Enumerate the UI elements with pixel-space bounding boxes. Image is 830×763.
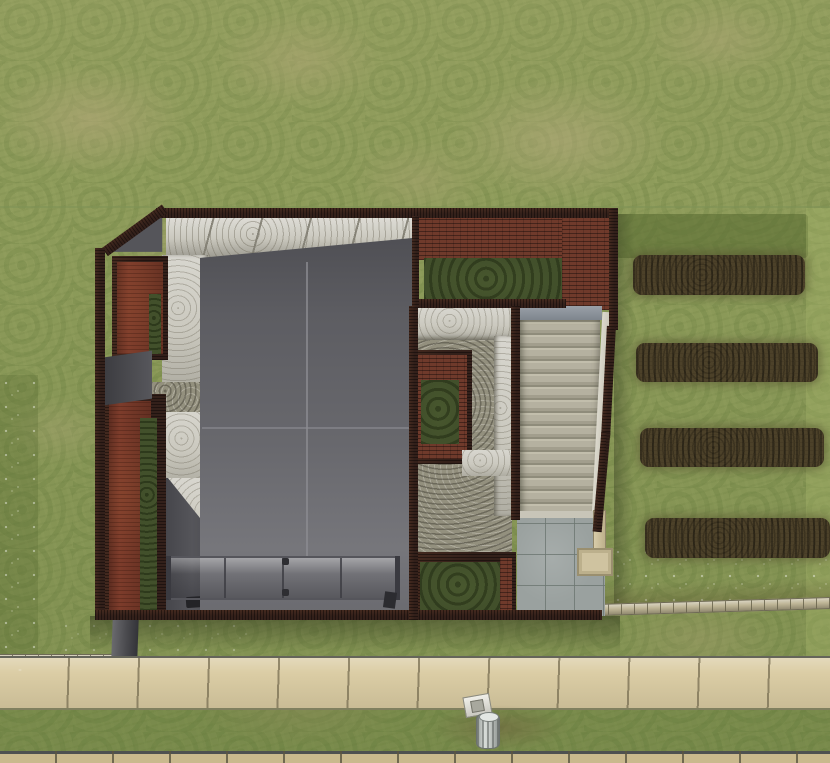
planter-bed[interactable] [421,380,459,444]
lower-courtyard-lawn[interactable] [420,562,504,612]
upper-hedge [149,294,161,354]
garden-plot-1[interactable] [633,255,805,295]
stair-landing [520,306,602,320]
wall-west [95,248,105,620]
staircase[interactable] [520,320,600,518]
terrace-lawn[interactable] [424,258,562,304]
road-curb [0,751,830,763]
trash-can-lid [479,712,499,722]
wall-south [95,610,602,620]
garage-door-hinge-top [282,558,289,565]
arbor-box[interactable] [577,548,613,576]
patio-sill [517,511,601,518]
dark-grass-patch [616,214,808,258]
garden-plot-3[interactable] [640,428,824,467]
verge-dirt-patch [410,700,590,755]
lower-hedge [140,418,157,610]
side-entry[interactable] [104,351,152,406]
flower-patch-left [0,375,38,665]
wall-terrace-west [412,216,419,308]
planter-concrete-cap [462,450,514,476]
wall-terrace-south [412,299,566,308]
lot-overview [0,0,830,763]
wall-stairs-west [511,306,520,520]
brick-terrace-east [562,216,612,310]
garage-door-endcap-left [166,556,171,600]
wall-north [156,208,618,218]
mailbox-lid [470,699,485,713]
roof-seam-vertical [306,262,308,556]
garden-plot-4[interactable] [645,518,830,558]
wall-east-upper [609,208,618,330]
garage-door-bracket [383,591,397,609]
wall-center-divider [409,306,418,620]
garage-door-hinge-bottom [282,589,289,596]
house-shadow-south [90,616,620,652]
garden-plot-2[interactable] [636,343,818,382]
courtyard-east-wall [494,336,512,516]
lower-courtyard-brick [500,558,512,613]
roof-seam-horizontal [202,427,414,429]
